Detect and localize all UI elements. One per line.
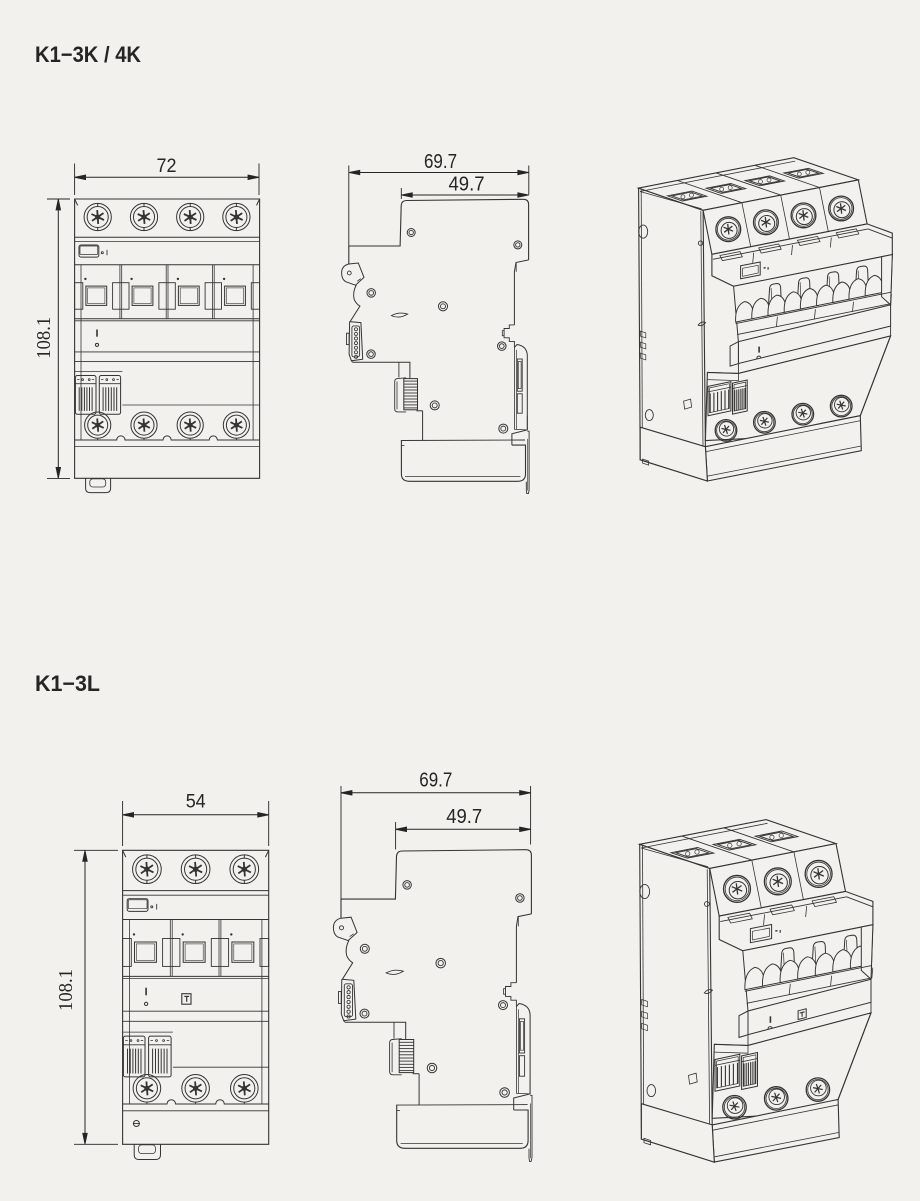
svg-text:69.7: 69.7: [424, 151, 457, 173]
svg-text:72: 72: [157, 156, 177, 177]
svg-text:108.1: 108.1: [33, 317, 55, 359]
svg-text:54: 54: [186, 792, 206, 813]
svg-text:69.7: 69.7: [419, 769, 452, 791]
svg-text:108.1: 108.1: [55, 969, 77, 1011]
svg-text:49.7: 49.7: [449, 173, 485, 195]
svg-text:49.7: 49.7: [446, 806, 482, 828]
svg-text:K1−3K / 4K: K1−3K / 4K: [35, 42, 141, 67]
svg-text:K1−3L: K1−3L: [35, 671, 100, 696]
